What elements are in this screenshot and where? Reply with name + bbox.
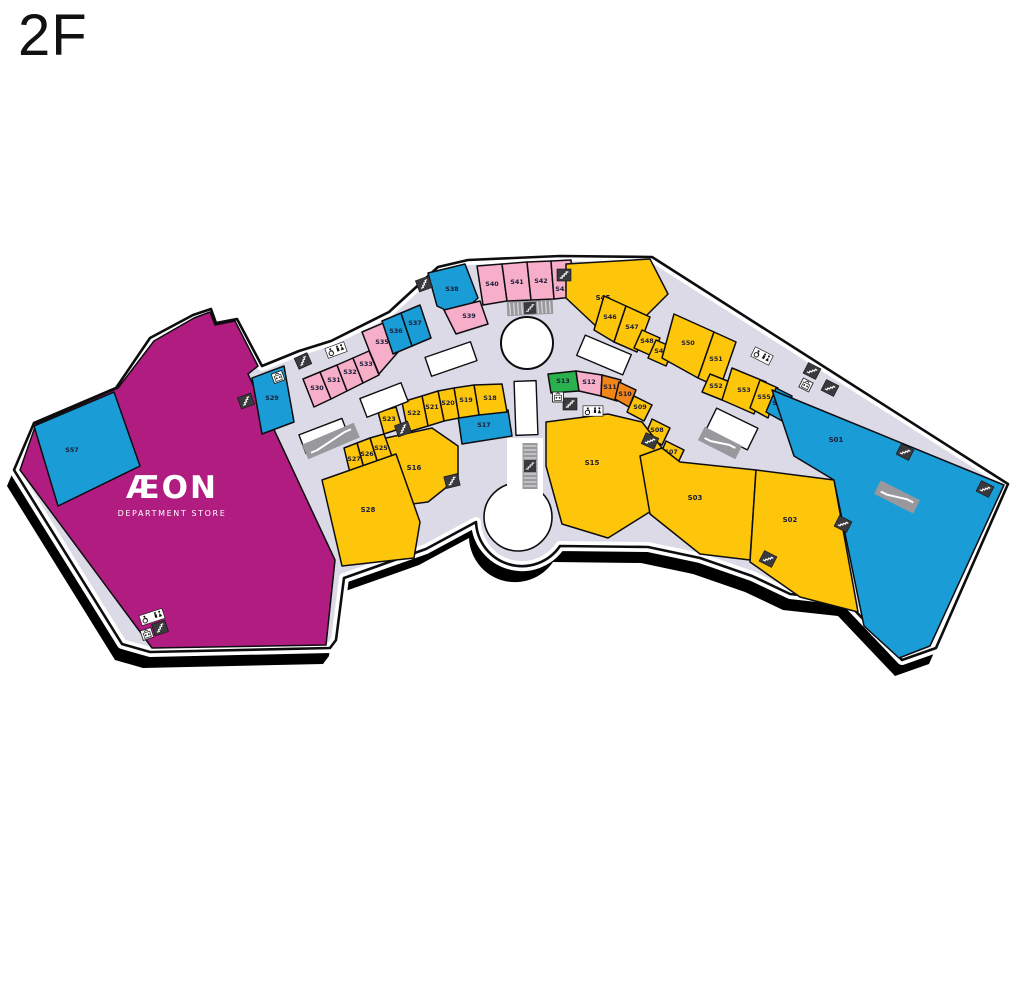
escalator-bank-icon bbox=[507, 300, 554, 316]
stairs-icon bbox=[563, 398, 577, 410]
store-region-S13 bbox=[548, 371, 579, 393]
floor-map-container: S57S29S30S31S32S33S35S36S37S38S39S40S41S… bbox=[0, 0, 1023, 1000]
male-icon bbox=[594, 409, 596, 413]
elevator-icon bbox=[553, 392, 564, 402]
elevator-person bbox=[559, 397, 561, 399]
restroom-icon bbox=[583, 406, 603, 416]
escalator-bank-icon bbox=[523, 443, 538, 489]
elevator-person bbox=[556, 397, 558, 399]
store-region-S41 bbox=[502, 262, 531, 301]
store-region-S42 bbox=[527, 261, 554, 300]
stairs-icon bbox=[557, 269, 571, 281]
floor-map: S57S29S30S31S32S33S35S36S37S38S39S40S41S… bbox=[0, 0, 1023, 1000]
male-icon bbox=[594, 407, 596, 409]
wheelchair-icon bbox=[587, 407, 589, 409]
court-circle bbox=[501, 317, 553, 369]
vacant-unit bbox=[514, 381, 538, 436]
female-icon bbox=[598, 407, 600, 409]
